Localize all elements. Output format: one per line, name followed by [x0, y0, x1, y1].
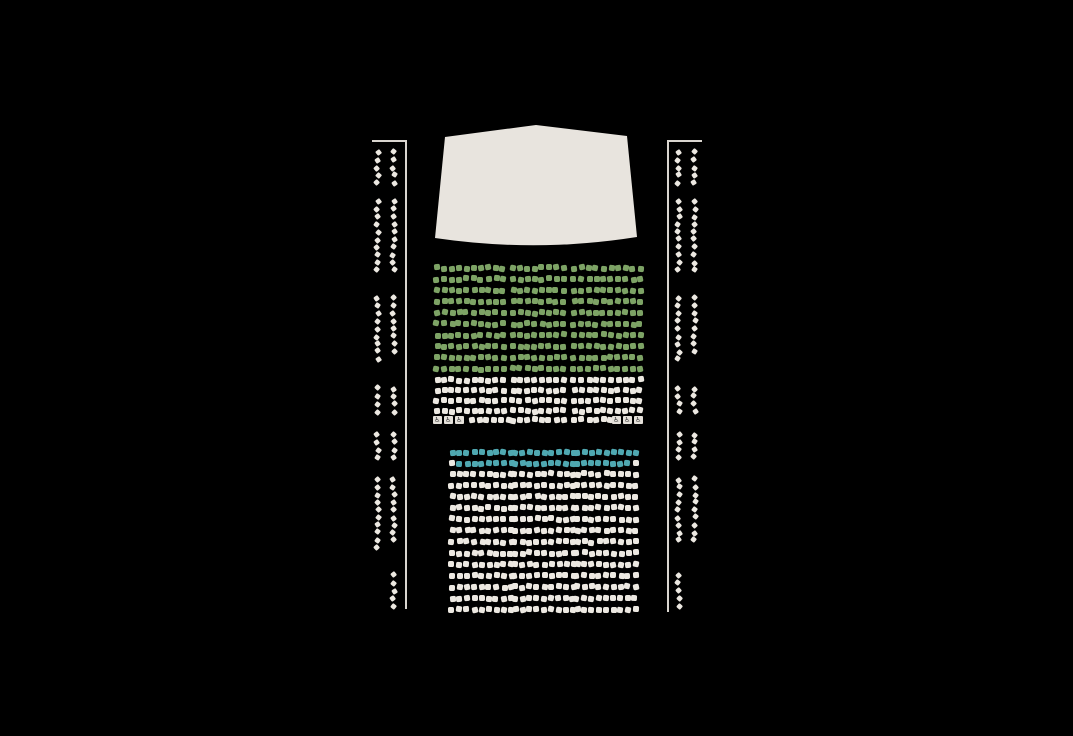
seat[interactable] [525, 397, 532, 403]
seat[interactable] [573, 573, 580, 580]
seat[interactable] [625, 516, 632, 523]
seat[interactable] [493, 572, 500, 578]
seat[interactable] [533, 606, 540, 612]
seat[interactable] [574, 460, 580, 466]
seat[interactable] [541, 482, 547, 488]
seat[interactable] [390, 506, 397, 513]
seat[interactable] [464, 573, 470, 579]
seat[interactable] [561, 331, 568, 337]
seat[interactable] [592, 416, 599, 423]
seat[interactable] [501, 527, 508, 533]
seat[interactable] [485, 365, 491, 371]
seat[interactable] [390, 302, 397, 309]
seat[interactable] [614, 264, 621, 271]
seat[interactable] [464, 505, 471, 511]
seat[interactable] [478, 408, 484, 414]
seat[interactable] [374, 401, 381, 408]
seat[interactable] [533, 584, 539, 590]
seat[interactable] [588, 494, 595, 500]
seat[interactable] [690, 235, 697, 242]
seat[interactable] [470, 397, 477, 403]
seat[interactable] [456, 561, 463, 567]
seat[interactable] [603, 607, 609, 613]
seat[interactable] [374, 528, 381, 535]
seat[interactable] [595, 493, 601, 499]
seat[interactable] [629, 309, 636, 315]
seat[interactable] [618, 481, 625, 487]
seat[interactable] [560, 376, 567, 383]
seat[interactable] [374, 302, 381, 309]
seat[interactable] [471, 265, 477, 271]
seat[interactable] [526, 493, 532, 499]
seat[interactable] [485, 310, 492, 316]
seat[interactable] [692, 484, 699, 491]
seat[interactable] [520, 504, 527, 510]
seat[interactable] [603, 504, 610, 510]
seat[interactable] [618, 539, 625, 546]
seat[interactable] [560, 320, 566, 326]
seat[interactable] [456, 344, 463, 350]
seat[interactable] [463, 343, 469, 349]
seat[interactable] [455, 386, 462, 392]
seat[interactable] [462, 387, 469, 393]
seat[interactable] [471, 561, 478, 568]
seat[interactable] [553, 344, 559, 350]
seat[interactable] [691, 348, 698, 355]
seat[interactable] [525, 606, 532, 612]
seat[interactable] [486, 332, 493, 338]
seat[interactable] [390, 386, 397, 393]
seat[interactable] [517, 332, 523, 338]
seat[interactable] [448, 398, 454, 404]
seat[interactable] [553, 387, 560, 394]
seat[interactable] [499, 493, 506, 500]
seat[interactable] [492, 584, 499, 591]
seat[interactable] [540, 494, 547, 501]
seat[interactable] [500, 320, 506, 326]
seat[interactable] [464, 517, 470, 523]
seat[interactable] [511, 494, 518, 501]
seat[interactable] [608, 331, 615, 338]
seat[interactable] [518, 449, 525, 456]
seat[interactable] [509, 417, 516, 424]
seat[interactable] [391, 491, 398, 498]
seat[interactable] [607, 276, 614, 283]
seat[interactable] [562, 549, 568, 555]
seat[interactable] [630, 332, 637, 338]
seat[interactable] [479, 562, 486, 568]
seat[interactable] [390, 156, 397, 163]
seat[interactable] [486, 298, 493, 304]
seat[interactable] [625, 505, 631, 511]
seat[interactable] [587, 276, 593, 282]
seat[interactable] [512, 528, 518, 534]
seat[interactable] [441, 308, 448, 315]
seat[interactable] [531, 354, 538, 361]
seat[interactable] [552, 299, 559, 306]
seat[interactable] [674, 180, 681, 187]
seat[interactable] [375, 506, 382, 513]
seat[interactable] [675, 536, 682, 543]
seat[interactable] [581, 482, 588, 489]
seat[interactable] [433, 366, 440, 373]
seat[interactable] [578, 398, 585, 404]
seat[interactable] [390, 515, 397, 522]
seat[interactable] [674, 157, 681, 164]
seat[interactable] [512, 550, 519, 556]
seat[interactable] [526, 482, 533, 488]
seat[interactable] [600, 365, 607, 371]
seat[interactable] [511, 504, 518, 510]
seat[interactable] [477, 277, 483, 283]
seat[interactable] [554, 398, 560, 404]
seat[interactable] [374, 454, 381, 461]
seat[interactable] [527, 504, 534, 511]
seat[interactable] [586, 287, 593, 293]
seat[interactable] [629, 265, 636, 271]
seat[interactable] [525, 539, 532, 545]
seat[interactable] [549, 551, 555, 557]
seat[interactable] [637, 288, 644, 294]
seat[interactable] [389, 310, 396, 317]
seat[interactable] [548, 572, 555, 578]
seat[interactable] [560, 344, 567, 350]
seat[interactable] [676, 213, 683, 220]
seat[interactable] [539, 332, 545, 338]
seat[interactable] [549, 504, 556, 510]
seat[interactable] [573, 595, 580, 602]
seat[interactable] [493, 299, 499, 305]
seat[interactable] [499, 288, 506, 294]
seat[interactable] [493, 515, 499, 521]
seat[interactable] [469, 416, 476, 423]
seat[interactable] [607, 287, 613, 293]
seat[interactable] [374, 393, 381, 400]
seat[interactable] [493, 550, 500, 556]
seat[interactable] [441, 286, 448, 292]
seat[interactable] [623, 344, 629, 350]
seat[interactable] [690, 156, 697, 163]
seat[interactable] [478, 505, 485, 511]
seat[interactable] [539, 309, 546, 315]
seat[interactable] [585, 407, 592, 413]
seat[interactable] [556, 572, 562, 578]
seat[interactable] [676, 603, 683, 610]
seat[interactable] [610, 550, 617, 557]
seat[interactable] [562, 505, 569, 512]
seat[interactable] [618, 561, 625, 568]
seat[interactable] [533, 595, 540, 601]
seat[interactable] [545, 417, 551, 423]
seat[interactable] [561, 416, 568, 422]
seat[interactable] [587, 504, 594, 510]
seat[interactable] [517, 321, 524, 327]
seat[interactable] [573, 505, 580, 511]
seat[interactable] [519, 516, 525, 522]
seat[interactable] [546, 376, 553, 382]
seat[interactable] [486, 515, 493, 522]
seat[interactable] [595, 460, 602, 466]
seat[interactable] [374, 326, 381, 333]
seat[interactable] [463, 275, 470, 281]
seat[interactable] [472, 449, 478, 455]
seat[interactable] [675, 587, 682, 594]
seat[interactable] [624, 583, 631, 590]
seat[interactable] [524, 286, 531, 293]
seat[interactable] [478, 265, 485, 272]
seat[interactable] [391, 400, 398, 407]
seat[interactable] [485, 321, 492, 328]
seat[interactable] [631, 483, 638, 489]
seat[interactable] [455, 526, 462, 533]
seat[interactable] [674, 317, 681, 324]
seat[interactable] [519, 573, 525, 579]
seat[interactable] [607, 407, 614, 414]
seat[interactable] [546, 264, 552, 270]
seat[interactable] [552, 287, 558, 293]
seat[interactable] [492, 354, 499, 360]
seat[interactable] [390, 603, 397, 610]
seat[interactable] [471, 287, 478, 293]
seat[interactable] [617, 449, 624, 455]
seat[interactable] [464, 493, 471, 500]
seat[interactable] [441, 344, 447, 350]
seat[interactable] [390, 332, 397, 339]
seat[interactable] [555, 526, 562, 533]
seat[interactable] [585, 342, 592, 349]
seat[interactable] [525, 365, 532, 371]
seat[interactable] [531, 298, 537, 304]
seat[interactable] [389, 476, 396, 483]
seat[interactable] [538, 343, 545, 349]
seat[interactable] [588, 450, 595, 456]
seat[interactable] [674, 221, 681, 228]
seat[interactable] [675, 310, 682, 317]
seat[interactable] [624, 573, 630, 579]
seat[interactable] [485, 276, 492, 282]
seat[interactable] [676, 400, 683, 407]
seat[interactable] [692, 498, 699, 505]
seat[interactable] [545, 343, 552, 350]
seat[interactable] [448, 354, 455, 360]
seat[interactable] [691, 266, 698, 273]
seat[interactable] [500, 299, 507, 305]
seat[interactable] [524, 266, 530, 272]
seat[interactable] [548, 539, 555, 546]
seat[interactable] [691, 214, 698, 221]
seat[interactable] [531, 321, 538, 327]
seat[interactable] [374, 259, 381, 266]
seat[interactable] [391, 221, 398, 228]
seat[interactable] [548, 450, 555, 456]
seat[interactable] [463, 594, 470, 600]
seat[interactable] [434, 408, 441, 414]
seat[interactable] [593, 310, 599, 316]
seat[interactable] [391, 180, 398, 187]
seat[interactable] [448, 297, 455, 303]
seat[interactable] [553, 407, 559, 413]
seat[interactable] [674, 355, 681, 362]
seat[interactable] [448, 607, 454, 613]
seat[interactable] [563, 560, 570, 566]
seat[interactable] [570, 276, 576, 282]
seat[interactable] [373, 165, 380, 172]
seat[interactable] [580, 527, 587, 534]
seat[interactable] [464, 551, 471, 557]
seat[interactable] [501, 397, 507, 403]
seat[interactable] [434, 310, 441, 317]
seat[interactable] [599, 310, 606, 316]
seat[interactable] [533, 562, 540, 568]
seat[interactable] [538, 299, 545, 305]
seat[interactable] [462, 309, 469, 315]
seat[interactable] [470, 299, 477, 305]
seat[interactable] [464, 583, 471, 590]
seat[interactable] [448, 265, 455, 271]
seat[interactable] [610, 482, 616, 488]
seat[interactable] [456, 504, 463, 511]
seat[interactable] [547, 355, 553, 361]
seat[interactable] [595, 504, 602, 511]
seat[interactable] [374, 476, 381, 483]
seat[interactable] [691, 148, 698, 155]
seat[interactable] [463, 482, 469, 488]
seat[interactable] [373, 243, 380, 250]
seat[interactable] [373, 544, 380, 551]
seat[interactable] [525, 594, 532, 600]
seat[interactable] [617, 493, 624, 500]
seat[interactable] [477, 549, 484, 556]
seat[interactable] [546, 366, 552, 372]
seat[interactable] [519, 471, 526, 477]
seat[interactable] [479, 515, 486, 521]
seat[interactable] [516, 365, 523, 372]
seat[interactable] [441, 376, 448, 383]
seat[interactable] [510, 343, 516, 349]
seat[interactable] [531, 331, 538, 338]
seat[interactable] [500, 573, 507, 580]
seat[interactable] [486, 606, 492, 612]
seat[interactable] [599, 286, 606, 293]
seat[interactable] [433, 276, 440, 282]
seat[interactable] [579, 309, 586, 315]
seat[interactable] [633, 572, 639, 578]
seat[interactable] [546, 408, 553, 415]
seat[interactable] [692, 317, 699, 324]
seat[interactable] [390, 325, 397, 332]
seat[interactable] [632, 505, 639, 512]
seat[interactable] [501, 310, 507, 316]
seat[interactable] [691, 506, 698, 513]
seat[interactable] [373, 431, 380, 438]
seat[interactable] [390, 454, 397, 461]
seat[interactable] [511, 573, 518, 580]
seat[interactable] [675, 572, 682, 579]
seat[interactable] [478, 494, 485, 501]
seat[interactable] [610, 595, 616, 601]
seat[interactable] [596, 561, 602, 567]
seat[interactable] [674, 341, 681, 348]
seat[interactable] [623, 397, 629, 403]
seat[interactable] [560, 299, 566, 305]
seat[interactable] [692, 408, 699, 415]
seat[interactable] [691, 438, 698, 445]
seat[interactable] [603, 516, 610, 522]
seat[interactable] [637, 332, 644, 338]
seat[interactable] [441, 365, 448, 372]
seat[interactable] [617, 606, 624, 613]
seat[interactable] [477, 332, 484, 338]
seat[interactable] [637, 366, 644, 373]
seat[interactable] [581, 549, 588, 555]
seat[interactable] [552, 331, 559, 338]
seat[interactable] [545, 321, 552, 328]
seat[interactable] [538, 287, 545, 293]
seat[interactable] [540, 607, 547, 613]
seat[interactable] [485, 377, 492, 383]
seat[interactable] [675, 251, 682, 258]
seat[interactable] [374, 213, 381, 220]
seat[interactable] [553, 416, 560, 423]
seat[interactable] [581, 607, 588, 613]
seat[interactable] [478, 387, 485, 394]
seat[interactable] [581, 572, 588, 578]
seat[interactable] [492, 343, 499, 349]
seat[interactable] [633, 606, 639, 612]
seat[interactable] [455, 265, 462, 271]
seat[interactable] [517, 376, 524, 382]
seat[interactable] [595, 481, 602, 488]
seat[interactable] [615, 276, 621, 282]
seat[interactable] [500, 366, 506, 372]
seat[interactable] [690, 400, 697, 407]
seat[interactable] [491, 417, 498, 423]
seat[interactable] [450, 470, 456, 476]
seat[interactable] [525, 275, 532, 281]
seat[interactable] [691, 165, 698, 172]
seat[interactable] [498, 417, 504, 423]
seat[interactable] [492, 321, 499, 327]
seat[interactable] [570, 321, 577, 327]
seat[interactable] [571, 342, 578, 348]
seat[interactable] [534, 550, 540, 556]
seat[interactable] [674, 506, 681, 513]
seat[interactable] [575, 493, 581, 499]
seat[interactable] [434, 354, 440, 360]
seat[interactable] [603, 594, 610, 600]
wheelchair-seat[interactable]: ♿ [433, 416, 442, 425]
seat[interactable] [538, 264, 544, 270]
seat[interactable] [607, 310, 613, 316]
seat[interactable] [578, 276, 585, 283]
seat[interactable] [623, 331, 630, 338]
seat[interactable] [603, 470, 610, 476]
seat[interactable] [510, 310, 516, 316]
seat[interactable] [561, 354, 568, 360]
seat[interactable] [448, 365, 454, 371]
seat[interactable] [510, 355, 517, 361]
seat[interactable] [626, 550, 632, 556]
seat[interactable] [456, 377, 463, 383]
seat[interactable] [449, 460, 456, 466]
seat[interactable] [582, 449, 589, 455]
seat[interactable] [607, 398, 613, 404]
seat[interactable] [470, 538, 477, 545]
seat[interactable] [610, 460, 617, 466]
seat[interactable] [607, 299, 614, 305]
seat[interactable] [524, 333, 531, 339]
seat[interactable] [479, 449, 485, 455]
